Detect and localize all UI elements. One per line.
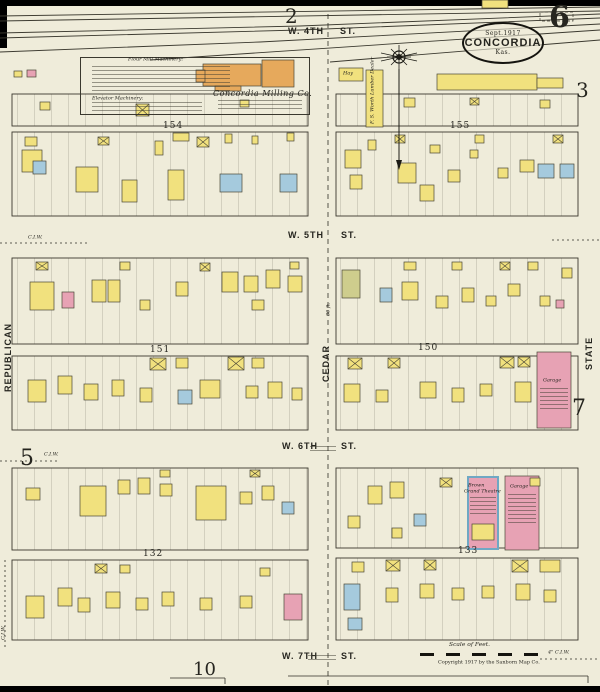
- building: [414, 514, 426, 526]
- building: [260, 568, 270, 576]
- building: [292, 388, 302, 400]
- building: [368, 486, 382, 504]
- building: [560, 164, 574, 178]
- building: [25, 137, 37, 146]
- street-state: STATE: [585, 337, 594, 370]
- stamp-city: CONCORDIA: [465, 37, 542, 49]
- building: [28, 380, 46, 402]
- elevator-notes-lines: [92, 102, 202, 111]
- block-150: 150: [418, 344, 438, 353]
- building: [512, 560, 528, 572]
- ciw-note-w6th: C.I.W.: [44, 452, 59, 457]
- machinery-notes-lines: [92, 66, 230, 94]
- w6th-tiny-note: [310, 446, 336, 454]
- building: [530, 478, 540, 486]
- garage-133-lines: [508, 494, 536, 524]
- building: [348, 618, 362, 630]
- building: [540, 296, 550, 306]
- building: [388, 358, 400, 368]
- building: [240, 596, 252, 608]
- building: [78, 598, 90, 612]
- scale-label: Scale of Feet.: [449, 642, 490, 648]
- building: [553, 135, 563, 143]
- building: [516, 584, 530, 600]
- scale-bar: [420, 653, 538, 656]
- building: [168, 170, 184, 200]
- building: [40, 102, 50, 110]
- building: [176, 282, 188, 296]
- building: [120, 262, 130, 270]
- building: [500, 262, 510, 270]
- building: [58, 376, 72, 394]
- building: [368, 140, 376, 150]
- building: [106, 592, 120, 608]
- building: [348, 358, 362, 369]
- building: [348, 516, 360, 528]
- brown-grand-theatre-label-2: Grand Theatre: [464, 489, 501, 494]
- building: [36, 262, 48, 270]
- building: [14, 71, 22, 77]
- building: [33, 161, 46, 174]
- adjoining-sheet-10: 10: [193, 661, 216, 679]
- building: [282, 502, 294, 514]
- building: [98, 137, 109, 145]
- building: [155, 141, 163, 155]
- brown-grand-theatre-label-1: Brown: [468, 483, 484, 488]
- building: [290, 262, 299, 269]
- building: [404, 98, 415, 107]
- adjoining-sheet-5: 5: [20, 448, 34, 470]
- building: [344, 584, 360, 610]
- building: [287, 133, 294, 141]
- building: [475, 135, 484, 143]
- building: [440, 478, 452, 487]
- building: [424, 560, 436, 570]
- building: [108, 280, 120, 302]
- building: [138, 478, 150, 494]
- building: [420, 185, 434, 201]
- building: [80, 486, 106, 516]
- building: [540, 560, 560, 572]
- building: [136, 598, 148, 610]
- copyright-note: Copyright 1917 by the Sanborn Map Co.: [438, 660, 540, 665]
- building: [252, 358, 264, 368]
- building: [538, 164, 554, 178]
- street-w4th: W. 4TH: [288, 27, 324, 36]
- stamp-state: Kas.: [495, 49, 510, 56]
- elevator-machinery-label: Elevator Machinery:: [92, 96, 143, 101]
- building: [452, 262, 462, 270]
- w7th-tiny-note: [308, 655, 336, 663]
- building: [26, 488, 40, 500]
- building: [380, 288, 392, 302]
- building: [562, 268, 572, 278]
- building: [520, 160, 534, 172]
- concordia-milling-label: Concordia Milling Co.: [213, 90, 312, 98]
- building: [482, 586, 494, 598]
- stamp-date: Sept.1917: [485, 30, 521, 37]
- block-133: 133: [458, 547, 478, 556]
- street-republican: REPUBLICAN: [4, 323, 13, 392]
- building: [395, 135, 405, 143]
- building: [225, 134, 232, 143]
- building: [515, 382, 531, 402]
- building: [288, 276, 302, 292]
- street-w5th-st: ST.: [341, 231, 357, 240]
- building: [252, 300, 264, 310]
- building: [112, 380, 124, 396]
- building: [160, 484, 172, 496]
- building: [162, 592, 174, 606]
- building: [437, 74, 537, 90]
- block-151: 151: [150, 346, 170, 355]
- cedar-width-note: 80 ft.: [326, 303, 331, 316]
- block-154: 154: [163, 122, 183, 131]
- building: [222, 272, 238, 292]
- building: [470, 150, 478, 158]
- building: [200, 380, 220, 398]
- building: [537, 78, 563, 88]
- building: [402, 282, 418, 300]
- sheet-number: 6: [549, 3, 570, 33]
- building: [27, 70, 36, 77]
- building: [462, 288, 474, 302]
- building: [220, 174, 242, 192]
- building: [244, 276, 258, 292]
- building: [280, 174, 297, 192]
- building: [140, 300, 150, 310]
- building: [345, 150, 361, 168]
- building: [240, 492, 252, 504]
- building: [160, 470, 170, 477]
- building: [62, 292, 74, 308]
- flour-mill-machinery-label: Flour Mill Machinery:: [128, 57, 183, 62]
- building: [540, 100, 550, 108]
- street-w5th: W. 5TH: [288, 231, 324, 240]
- building: [197, 137, 209, 147]
- building: [76, 167, 98, 192]
- building: [350, 175, 362, 189]
- building: [196, 486, 226, 520]
- milling-sub-lines: [218, 100, 302, 112]
- building: [482, 0, 508, 8]
- building: [448, 170, 460, 182]
- building: [430, 145, 440, 153]
- theatre-sub-lines: [470, 497, 496, 517]
- building: [84, 384, 98, 400]
- building: [486, 296, 496, 306]
- building: [268, 382, 282, 398]
- building: [140, 388, 152, 402]
- ciw-note-w7th: 4" C.I.W.: [548, 650, 570, 655]
- ciw-note-w5th: C.I.W.: [28, 235, 43, 240]
- garage-state-label: Garage: [543, 378, 561, 383]
- building: [266, 270, 280, 288]
- building: [342, 270, 360, 298]
- concordia-title-stamp: Sept.1917 CONCORDIA Kas.: [462, 22, 544, 64]
- garage-state-lines: [540, 388, 568, 410]
- building: [262, 486, 274, 500]
- building: [420, 584, 434, 598]
- building: [118, 480, 130, 494]
- building: [352, 562, 364, 572]
- building: [178, 390, 192, 404]
- building: [26, 596, 44, 618]
- building: [508, 284, 520, 296]
- building: [498, 168, 508, 178]
- building: [470, 98, 479, 105]
- street-w6th-st: ST.: [341, 442, 357, 451]
- garage-133-label: Garage: [510, 484, 528, 489]
- building: [528, 262, 538, 270]
- sanborn-map-sheet: { "colors":{ "paper":"#efecda","ink":"#2…: [0, 0, 600, 692]
- building: [480, 384, 492, 396]
- worth-lumber-label: F. S. Worth Lumber Dealer: [370, 57, 375, 124]
- building: [390, 482, 404, 498]
- street-w4th-st: ST.: [340, 27, 356, 36]
- block-155: 155: [450, 122, 470, 131]
- adjoining-sheet-2: 2: [285, 6, 298, 26]
- building: [284, 594, 302, 620]
- street-w7th-st: ST.: [341, 652, 357, 661]
- building: [344, 384, 360, 402]
- building: [472, 524, 494, 540]
- building: [544, 590, 556, 602]
- ciw-note-left-edge: C.I.W.: [1, 625, 6, 640]
- building: [556, 300, 564, 308]
- building: [122, 180, 137, 202]
- building: [246, 386, 258, 398]
- building: [200, 263, 210, 271]
- building: [376, 390, 388, 402]
- adjoining-sheet-3: 3: [576, 80, 589, 100]
- building: [200, 598, 212, 610]
- building: [392, 528, 402, 538]
- building: [386, 588, 398, 602]
- building: [30, 282, 54, 310]
- hay-label: Hay: [343, 71, 353, 76]
- building: [452, 388, 464, 402]
- building: [228, 357, 244, 370]
- building: [252, 136, 258, 144]
- building: [250, 470, 260, 477]
- block-132: 132: [143, 550, 163, 559]
- building: [386, 560, 400, 571]
- building: [500, 357, 514, 368]
- building: [452, 588, 464, 600]
- adjoining-sheet-7: 7: [572, 398, 586, 420]
- building: [436, 296, 448, 308]
- building: [398, 163, 416, 183]
- building: [58, 588, 72, 606]
- building: [95, 564, 107, 573]
- building: [150, 358, 166, 370]
- building: [173, 133, 189, 141]
- building: [404, 262, 416, 270]
- building: [92, 280, 106, 302]
- building: [518, 357, 530, 367]
- building: [120, 565, 130, 573]
- building: [420, 382, 436, 398]
- building: [176, 358, 188, 368]
- street-cedar: CEDAR: [322, 345, 331, 382]
